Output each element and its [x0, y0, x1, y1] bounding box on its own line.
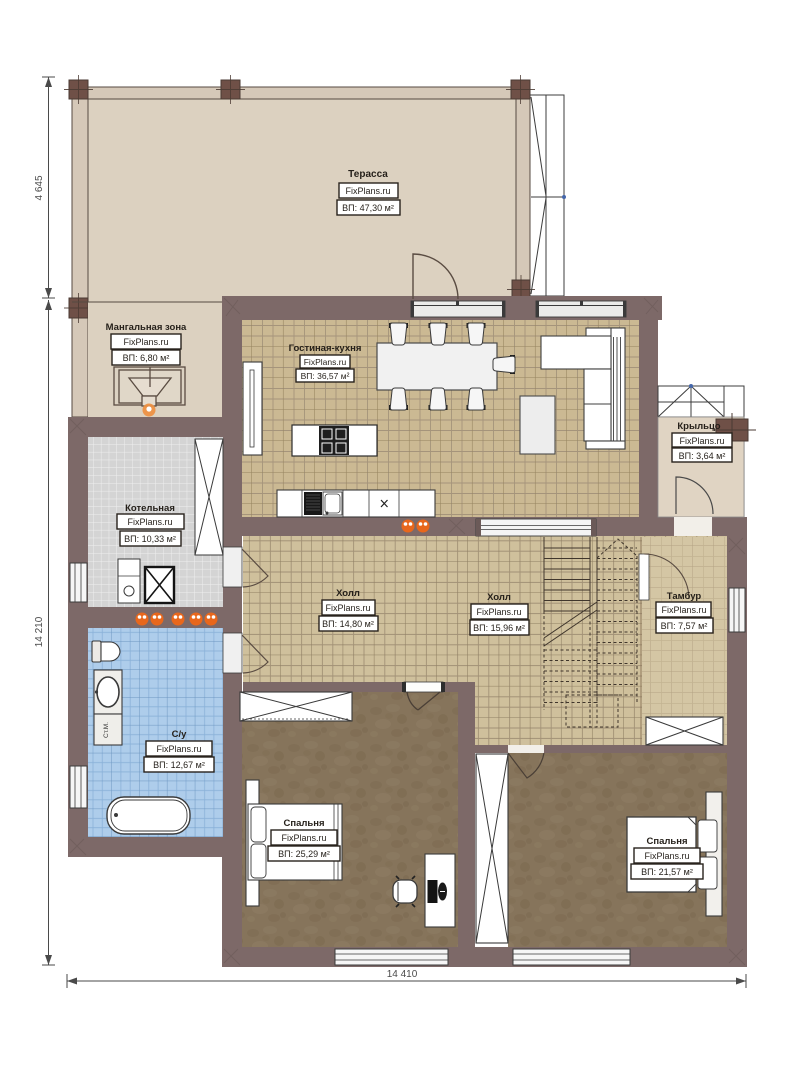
svg-text:FixPlans.ru: FixPlans.ru [123, 337, 168, 347]
svg-text:ВП: 14,80 м²: ВП: 14,80 м² [322, 619, 374, 629]
svg-text:ВП: 7,57 м²: ВП: 7,57 м² [661, 621, 708, 631]
svg-text:14 210: 14 210 [34, 616, 45, 647]
svg-text:Тамбур: Тамбур [667, 591, 702, 602]
svg-text:Гостиная-кухня: Гостиная-кухня [289, 343, 362, 354]
svg-text:Крыльцо: Крыльцо [677, 421, 720, 432]
svg-text:Спальня: Спальня [283, 818, 324, 829]
svg-text:FixPlans.ru: FixPlans.ru [325, 603, 370, 613]
svg-text:ВП: 6,80 м²: ВП: 6,80 м² [123, 353, 170, 363]
svg-text:FixPlans.ru: FixPlans.ru [281, 833, 326, 843]
svg-text:ВП: 10,33 м²: ВП: 10,33 м² [124, 534, 176, 544]
svg-text:ВП: 21,57 м²: ВП: 21,57 м² [641, 867, 693, 877]
svg-text:С/у: С/у [172, 729, 188, 740]
svg-text:Холл: Холл [487, 592, 511, 603]
svg-text:FixPlans.ru: FixPlans.ru [679, 436, 724, 446]
svg-text:FixPlans.ru: FixPlans.ru [345, 186, 390, 196]
svg-text:4 645: 4 645 [34, 175, 45, 200]
svg-text:FixPlans.ru: FixPlans.ru [127, 517, 172, 527]
svg-text:ВП: 12,67 м²: ВП: 12,67 м² [153, 760, 205, 770]
svg-text:ВП: 36,57 м²: ВП: 36,57 м² [301, 371, 350, 381]
svg-text:Мангальная зона: Мангальная зона [106, 322, 187, 333]
svg-text:Спальня: Спальня [646, 836, 687, 847]
svg-text:14 410: 14 410 [387, 969, 418, 980]
svg-text:FixPlans.ru: FixPlans.ru [476, 607, 521, 617]
svg-text:Котельная: Котельная [125, 503, 175, 514]
svg-text:FixPlans.ru: FixPlans.ru [661, 605, 706, 615]
svg-text:FixPlans.ru: FixPlans.ru [644, 851, 689, 861]
svg-text:FixPlans.ru: FixPlans.ru [304, 357, 347, 367]
svg-text:Терасса: Терасса [348, 169, 388, 180]
svg-text:ВП: 15,96 м²: ВП: 15,96 м² [473, 623, 525, 633]
svg-text:FixPlans.ru: FixPlans.ru [156, 744, 201, 754]
svg-text:ВП: 25,29 м²: ВП: 25,29 м² [278, 849, 330, 859]
svg-text:Ст.М.: Ст.М. [103, 722, 110, 738]
svg-text:Холл: Холл [336, 588, 360, 599]
svg-text:ВП: 3,64 м²: ВП: 3,64 м² [679, 451, 726, 461]
svg-text:ВП: 47,30 м²: ВП: 47,30 м² [342, 203, 394, 213]
